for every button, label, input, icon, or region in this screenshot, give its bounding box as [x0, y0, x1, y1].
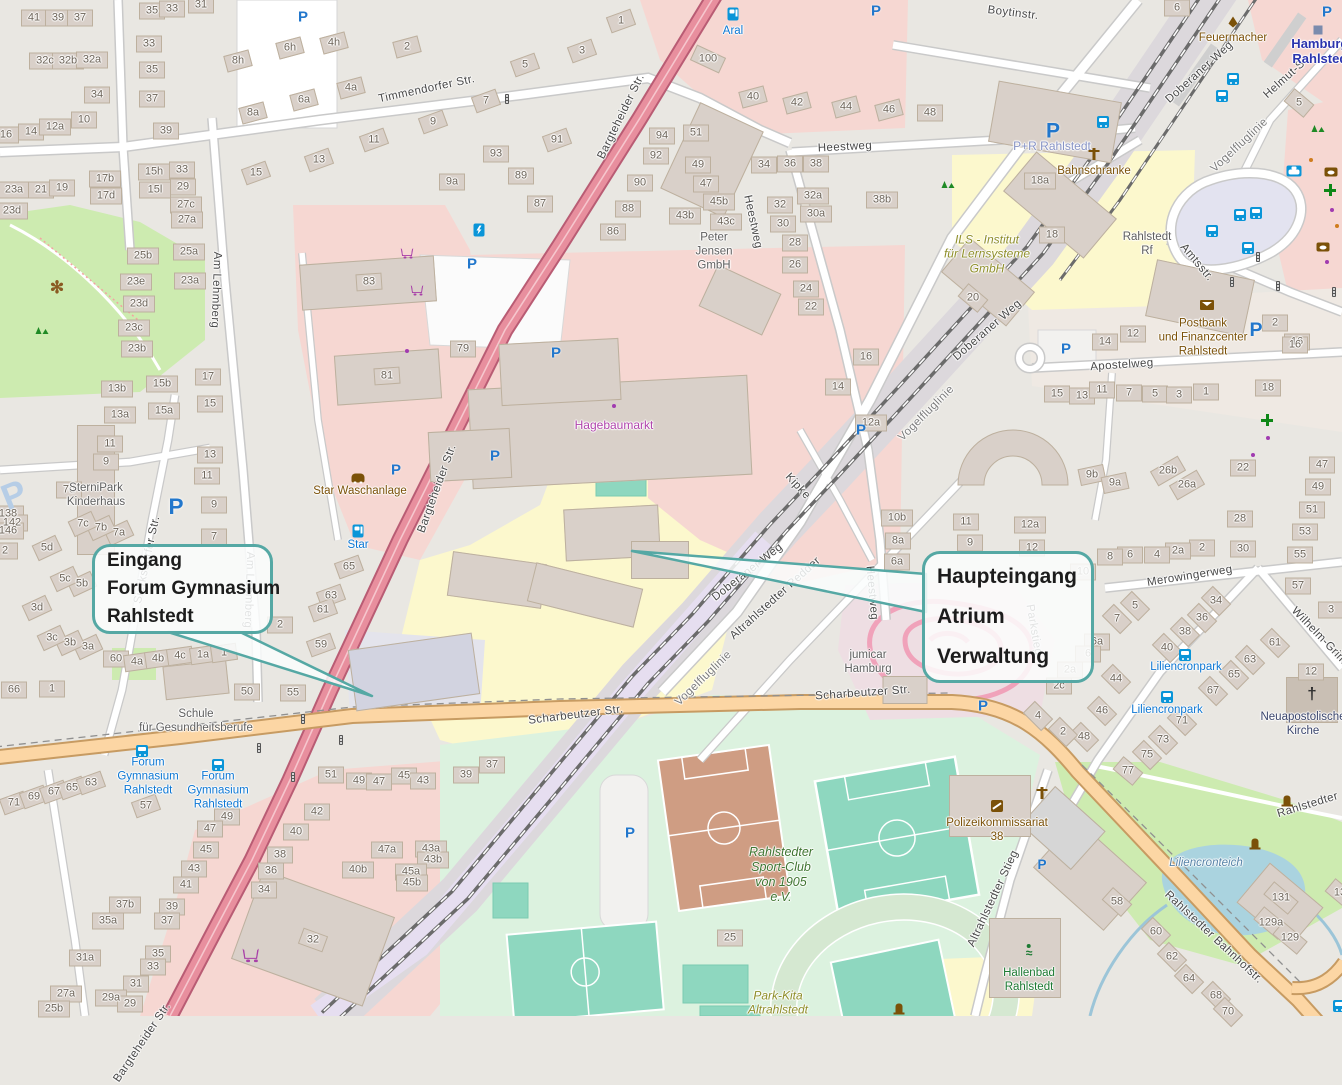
bus-icon — [1227, 73, 1239, 85]
bus-icon — [1216, 90, 1228, 102]
od-icon — [1309, 158, 1313, 162]
tl-icon — [339, 735, 343, 745]
memorial-icon — [896, 1004, 903, 1013]
cart-icon — [412, 285, 425, 296]
station-icon — [1314, 26, 1323, 35]
gate-icon — [1041, 787, 1044, 799]
p-icon: P — [551, 345, 561, 362]
fuel-icon — [353, 525, 364, 538]
tl-icon — [505, 94, 509, 104]
carwash-icon — [352, 474, 365, 483]
p-icon: P — [1037, 857, 1046, 872]
p-icon: P — [625, 825, 635, 842]
bus-icon — [1333, 1000, 1342, 1012]
pd-icon — [1251, 453, 1255, 457]
memorial-icon — [1252, 839, 1259, 848]
pd-icon — [1330, 208, 1334, 212]
bus-icon — [1234, 209, 1246, 221]
callout-line: Atrium — [937, 597, 1079, 637]
p-icon: P — [490, 448, 500, 465]
p-icon: P — [1061, 341, 1071, 358]
pd-icon — [1266, 436, 1270, 440]
p-icon: P — [1249, 319, 1262, 341]
bigb-icon: P — [0, 471, 33, 519]
tl-icon — [291, 772, 295, 782]
p-icon: P — [978, 698, 988, 715]
playground-icon — [942, 178, 955, 188]
memorial-icon — [1284, 796, 1291, 805]
tl-icon — [1256, 252, 1260, 262]
swim-icon: ≈ — [1026, 946, 1033, 960]
pd-icon — [1325, 260, 1329, 264]
tl-icon — [1230, 277, 1234, 287]
p-icon: P — [1322, 4, 1332, 21]
icons-layer: PPPPPPPPPPPPPPPP≈✻† — [0, 0, 1342, 1016]
pharm-icon — [1324, 184, 1336, 196]
p-icon: P — [1046, 119, 1060, 143]
callout-line: Forum Gymnasium — [107, 575, 258, 603]
playground-icon — [36, 324, 49, 334]
eye-icon — [1325, 168, 1338, 177]
flower-icon: ✻ — [50, 278, 64, 298]
tl-icon — [1332, 287, 1336, 297]
bus-icon — [1179, 649, 1191, 661]
callout-line: Verwaltung — [937, 637, 1079, 677]
tl-icon — [301, 714, 305, 724]
tl-icon — [257, 743, 261, 753]
pharm-icon — [1261, 414, 1273, 426]
bus-icon — [1242, 242, 1254, 254]
callout-line: Eingang — [107, 547, 258, 575]
od-icon — [1335, 224, 1339, 228]
callout-line: Haupteingang — [937, 557, 1079, 597]
p-icon: P — [871, 3, 881, 20]
eye-icon — [1317, 243, 1330, 252]
callout-eingang-forum[interactable]: Eingang Forum Gymnasium Rahlstedt — [92, 544, 273, 634]
map-canvas[interactable]: 41393732c32b32a3410161412a23a211917b17d2… — [0, 0, 1342, 1016]
bus-icon — [1161, 691, 1173, 703]
p-icon: P — [391, 462, 401, 479]
bus-icon — [212, 759, 224, 771]
cart-icon — [402, 248, 415, 259]
envelope-icon — [1200, 300, 1214, 310]
church-icon: † — [1307, 684, 1316, 704]
gate-icon — [1093, 148, 1096, 160]
fire-icon — [1229, 17, 1238, 28]
pd-icon — [612, 404, 616, 408]
p-icon: P — [856, 422, 866, 439]
p-icon: P — [298, 9, 308, 26]
charge-icon — [474, 224, 485, 237]
p-icon: P — [168, 494, 183, 520]
bus-icon — [1206, 225, 1218, 237]
taxi-icon — [1287, 166, 1302, 177]
cart-icon — [244, 948, 261, 962]
p-icon: P — [467, 256, 477, 273]
tl-icon — [1276, 281, 1280, 291]
bus-icon — [1250, 207, 1262, 219]
callout-haupteingang-atrium[interactable]: Haupteingang Atrium Verwaltung — [922, 551, 1094, 683]
pd-icon — [405, 349, 409, 353]
police-icon — [991, 800, 1003, 812]
bus-icon — [1097, 116, 1109, 128]
fuel-icon — [728, 8, 739, 21]
bus-icon — [136, 745, 148, 757]
playground-icon — [1312, 122, 1325, 132]
callout-line: Rahlstedt — [107, 603, 258, 631]
